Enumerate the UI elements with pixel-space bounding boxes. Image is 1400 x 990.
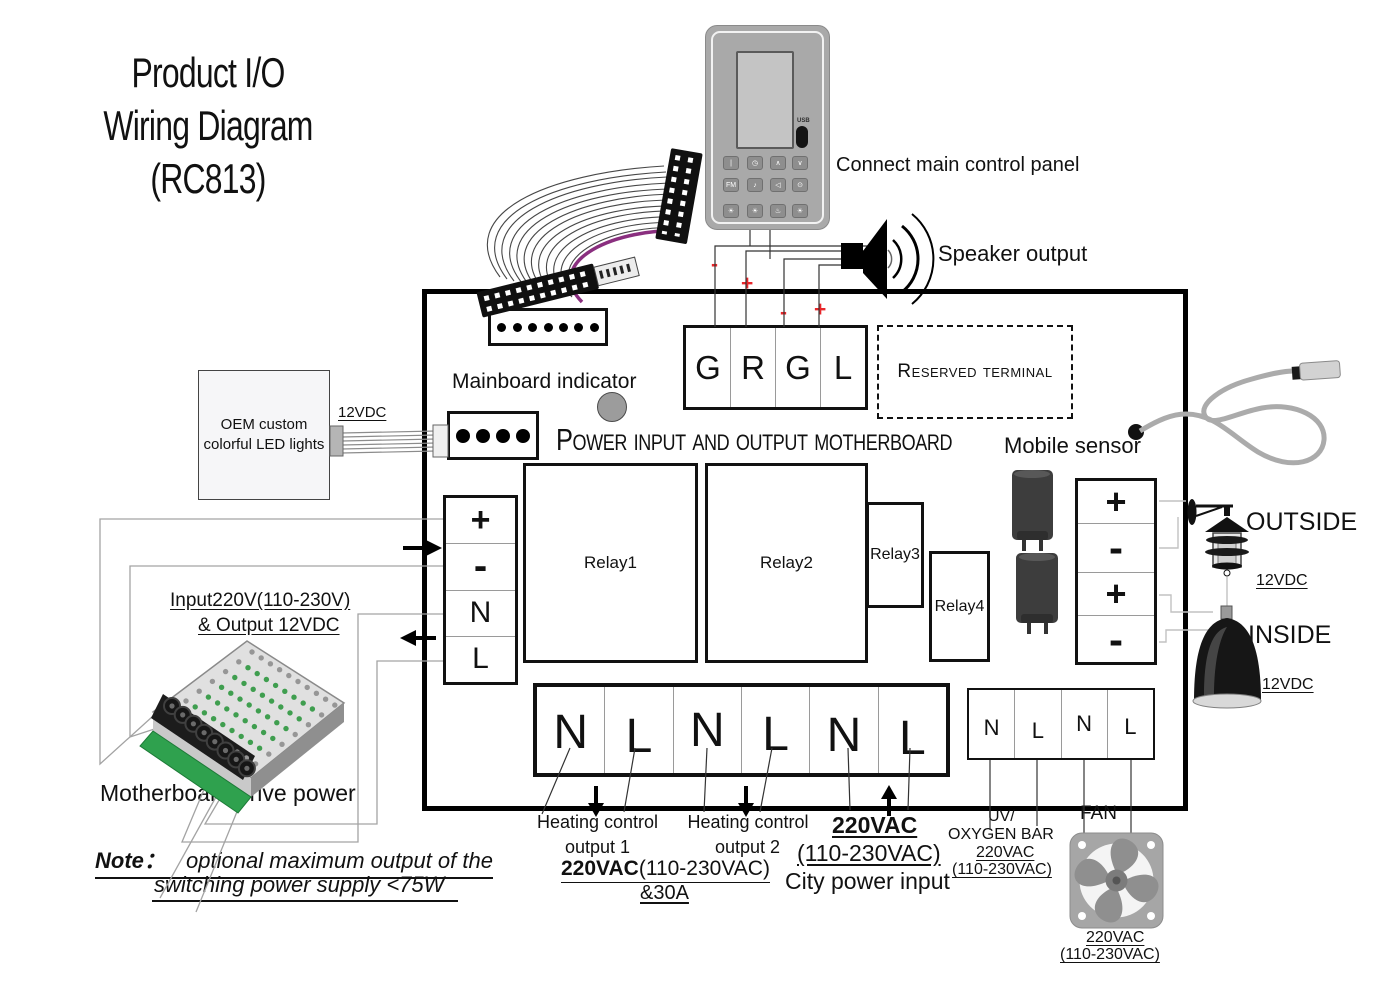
heating2-output: output 2 (690, 837, 805, 858)
usb-port (796, 126, 808, 148)
relay4-label: Relay4 (932, 554, 987, 659)
terminal-g2: G (775, 328, 820, 407)
panel-button-down: ∨ (792, 156, 808, 170)
panel-button-fm: FM (723, 178, 739, 192)
panel-screen (736, 51, 794, 149)
terminal-l: L (446, 636, 515, 682)
psu-spec-line2: & Output 12VDC (198, 615, 340, 637)
relay2-label: Relay2 (708, 466, 865, 660)
ac-l2: L (741, 687, 809, 773)
note-line2: switching power supply <75W (152, 872, 458, 902)
uv-voltage-range: (110-230VAC) (952, 861, 1052, 879)
led-voltage-label: 12VDC (338, 404, 386, 421)
fan-icon (1070, 833, 1163, 928)
mobile-sensor-label: Mobile sensor (1004, 433, 1141, 459)
uv-voltage: 220VAC (976, 844, 1034, 862)
terminal-minus1: - (446, 543, 515, 589)
ribbon-connector-panel (655, 148, 702, 244)
right-dc-terminal-block: + - + - (1075, 478, 1157, 665)
terminal-n: N (446, 590, 515, 636)
aux-n1: N (969, 690, 1014, 758)
polarity-plus2: + (814, 298, 826, 322)
panel-button-temp: | (723, 156, 739, 170)
panel-button-light3: ☀ (792, 204, 808, 218)
heating1-voltage-bold: 220VAC (561, 857, 639, 880)
note-text1: optional maximum output of the (186, 848, 493, 873)
led-socket-connector (447, 411, 539, 460)
heating2-title: Heating control (678, 812, 818, 833)
panel-button-clock: ◷ (747, 156, 763, 170)
ac-l3: L (878, 687, 946, 773)
outside-label: OUTSIDE (1246, 508, 1357, 537)
ac-n2: N (673, 687, 741, 773)
indicator-led (597, 392, 627, 422)
ribbon-cable (487, 166, 683, 299)
heating1-amps: &30A (640, 882, 689, 905)
ac-n3: N (809, 687, 877, 773)
panel-button-music: ♪ (747, 178, 763, 192)
outside-voltage-label: 12VDC (1256, 572, 1308, 590)
panel-button-speaker: ◁ (770, 178, 786, 192)
note-prefix: Note： (95, 848, 166, 873)
grgl-terminal-block: G R G L (683, 325, 868, 410)
oem-led-box: OEM custom colorful LED lights (198, 370, 330, 500)
relay3-box: Relay3 (866, 502, 924, 608)
panel-button-power: ⊙ (792, 178, 808, 192)
city-power-label: City power input (785, 868, 950, 895)
heating1-output: output 1 (540, 837, 655, 858)
panel-button-up: ∧ (770, 156, 786, 170)
terminal-plus1: + (446, 498, 515, 543)
panel-button-light2: ☀ (747, 204, 763, 218)
ribbon-socket-connector (488, 308, 608, 346)
relay1-box: Relay1 (523, 463, 698, 663)
ac-l1: L (604, 687, 672, 773)
terminal-plus-out: + (1078, 481, 1154, 523)
usb-label: USB (797, 118, 810, 124)
ac-n1: N (537, 687, 604, 773)
title-line1: Product I/O (94, 46, 322, 99)
heating1-title: Heating control (530, 812, 665, 833)
board-heading: Power input and output motherboard (556, 422, 952, 458)
oem-led-line1: OEM custom (221, 415, 308, 435)
terminal-minus-in: - (1078, 615, 1154, 664)
aux-l1: L (1014, 690, 1060, 758)
title-line3: (RC813) (94, 152, 322, 205)
heating1-voltage-rest: (110-230VAC) (639, 857, 770, 880)
outside-lamp-icon (1188, 499, 1250, 576)
terminal-r: R (730, 328, 775, 407)
oem-led-line2: colorful LED lights (204, 435, 325, 455)
uv-line1: UV/ (988, 808, 1015, 826)
polarity-minus2: - (780, 301, 787, 325)
fan-label: FAN (1080, 803, 1117, 825)
uv-line2: OXYGEN BAR (948, 826, 1054, 844)
psu-name-label: Motherboard drive power (100, 780, 356, 807)
city-voltage-range: (110-230VAC) (797, 840, 941, 867)
speaker-output-label: Speaker output (938, 241, 1087, 267)
aux-l2: L (1107, 690, 1153, 758)
terminal-l: L (820, 328, 865, 407)
connect-panel-label: Connect main control panel (836, 154, 1079, 177)
city-voltage-bold: 220VAC (832, 812, 917, 839)
main-control-panel: USB | ◷ ∧ ∨ FM ♪ ◁ ⊙ ☀ ☀ ♨ ☀ (705, 25, 830, 230)
terminal-plus-in: + (1078, 572, 1154, 615)
aux-n2: N (1061, 690, 1107, 758)
panel-button-steam: ♨ (770, 204, 786, 218)
reserved-terminal-label: Reserved terminal (897, 361, 1052, 383)
ac-terminal-block: N L N L N L (533, 683, 950, 777)
reserved-terminal-box: Reserved terminal (877, 325, 1073, 419)
left-dc-terminal-block: + - N L (443, 495, 518, 685)
panel-button-light1: ☀ (723, 204, 739, 218)
relay3-label: Relay3 (869, 505, 921, 605)
wiring-diagram-page: Product I/O Wiring Diagram (RC813) Power… (0, 0, 1400, 990)
terminal-g1: G (686, 328, 730, 407)
relay4-box: Relay4 (929, 551, 990, 662)
relay2-box: Relay2 (705, 463, 868, 663)
page-title: Product I/O Wiring Diagram (RC813) (94, 46, 322, 205)
relay1-label: Relay1 (526, 466, 695, 660)
fan-voltage: 220VAC (1086, 929, 1144, 947)
inside-label: INSIDE (1248, 621, 1331, 650)
title-line2: Wiring Diagram (94, 99, 322, 152)
fan-voltage-range: (110-230VAC) (1060, 946, 1160, 964)
inside-voltage-label: 12VDC (1262, 676, 1314, 694)
aux-terminal-block: N L N L (967, 688, 1155, 760)
heating1-voltage: 220VAC(110-230VAC) (561, 857, 770, 883)
terminal-minus-out: - (1078, 523, 1154, 572)
mainboard-indicator-label: Mainboard indicator (452, 370, 636, 394)
polarity-plus1: + (741, 272, 753, 296)
psu-spec-line1: Input220V(110-230V) (170, 590, 350, 612)
polarity-minus1: - (711, 253, 718, 277)
